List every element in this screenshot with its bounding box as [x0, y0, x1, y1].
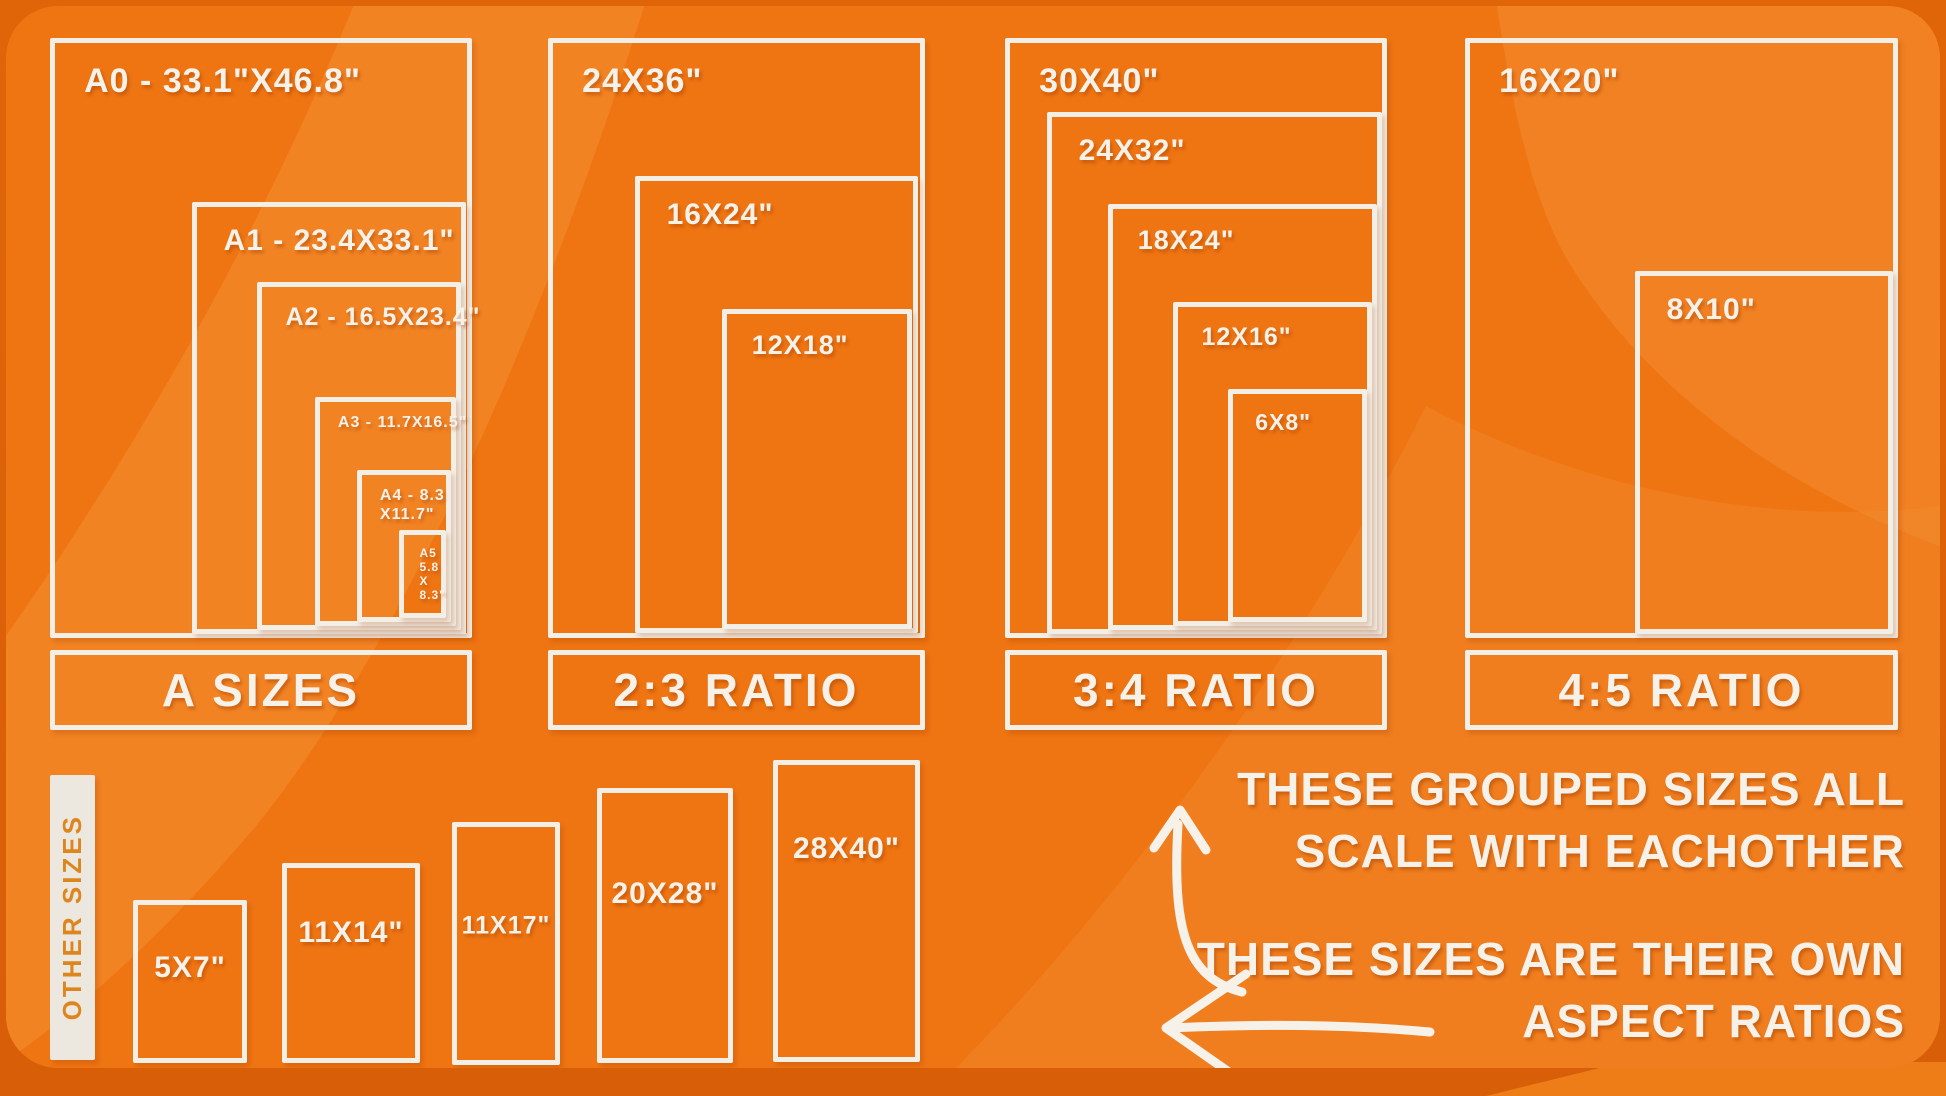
- other-sizes-label: OTHER SIZES: [57, 814, 88, 1020]
- size-label-12x16: 12X16": [1202, 323, 1292, 352]
- size-label-line: A4 - 8.3: [380, 487, 445, 506]
- size-label-28x40: 28X40": [778, 832, 915, 866]
- size-label-12x18: 12X18": [752, 330, 849, 361]
- poster-size-infographic: OTHER SIZES THESE GROUPED SIZES ALL SCAL…: [6, 6, 1940, 1068]
- size-label-line: 8.3": [419, 588, 445, 602]
- size-box-11x17: 11X17": [452, 822, 560, 1065]
- size-label-20x28: 20X28": [602, 877, 728, 911]
- size-label-16x20: 16X20": [1499, 62, 1619, 101]
- size-box-20x28: 20X28": [597, 788, 733, 1063]
- note-grouped-sizes: THESE GROUPED SIZES ALL SCALE WITH EACHO…: [1237, 758, 1905, 882]
- size-label-a3: A3 - 11.7X16.5": [338, 414, 467, 432]
- size-box-11x14: 11X14": [282, 863, 420, 1063]
- size-label-30x40: 30X40": [1039, 62, 1159, 101]
- size-label-24x32: 24X32": [1079, 134, 1186, 168]
- size-label-line: A5: [419, 546, 445, 560]
- size-label-a1: A1 - 23.4X33.1": [224, 224, 455, 258]
- size-label-line: X: [419, 574, 445, 588]
- left-arrow-icon: [1142, 958, 1442, 1068]
- size-label-a0: A0 - 33.1"X46.8": [84, 62, 361, 101]
- size-label-16x24: 16X24": [667, 198, 774, 232]
- size-label-a5: A55.8X8.3": [419, 546, 445, 603]
- size-label-line: 5.8: [419, 560, 445, 574]
- size-label-24x36: 24X36": [582, 62, 702, 101]
- size-label-18x24: 18X24": [1138, 225, 1235, 256]
- group-label-bar-a-sizes: A SIZES: [50, 650, 472, 730]
- group-label-bar-ratio-4-5: 4:5 RATIO: [1465, 650, 1898, 730]
- size-label-5x7: 5X7": [138, 951, 242, 985]
- note-grouped-line2: SCALE WITH EACHOTHER: [1237, 820, 1905, 882]
- size-label-11x17: 11X17": [457, 911, 555, 940]
- size-box-5x7: 5X7": [133, 900, 247, 1063]
- size-label-11x14: 11X14": [287, 916, 415, 950]
- note-grouped-line1: THESE GROUPED SIZES ALL: [1237, 758, 1905, 820]
- size-label-8x10: 8X10": [1667, 293, 1756, 327]
- size-box-8x10: 8X10": [1635, 271, 1893, 634]
- size-box-a5: A55.8X8.3": [399, 530, 446, 618]
- stage: OTHER SIZES THESE GROUPED SIZES ALL SCAL…: [6, 6, 1940, 1068]
- size-box-12x18: 12X18": [722, 309, 912, 629]
- size-box-28x40: 28X40": [773, 760, 920, 1062]
- size-label-line: X11.7": [380, 506, 445, 525]
- group-label-bar-ratio-2-3: 2:3 RATIO: [548, 650, 925, 730]
- group-label-bar-ratio-3-4: 3:4 RATIO: [1005, 650, 1387, 730]
- size-box-6x8: 6X8": [1228, 389, 1367, 622]
- other-sizes-bar: OTHER SIZES: [50, 775, 95, 1060]
- size-label-a2: A2 - 16.5X23.4": [286, 303, 481, 332]
- size-label-a4: A4 - 8.3X11.7": [380, 487, 445, 525]
- size-label-6x8: 6X8": [1255, 409, 1311, 436]
